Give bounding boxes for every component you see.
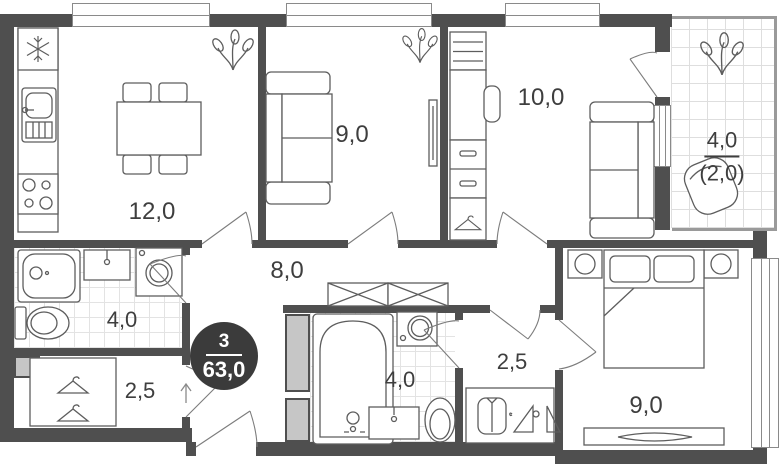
door-opening-storage bbox=[182, 365, 190, 417]
window-room-top bbox=[505, 3, 600, 27]
duct-shaft bbox=[285, 398, 310, 442]
door-opening-room-top bbox=[497, 240, 547, 248]
bed-icon bbox=[604, 250, 704, 368]
window-living bbox=[286, 3, 432, 27]
window-bedroom bbox=[751, 258, 779, 448]
kitchen-sink-icon bbox=[22, 88, 56, 142]
bathroom-center-floor bbox=[310, 313, 455, 442]
door-swing-icon bbox=[490, 310, 540, 339]
room-label-kitchen-dining: 12,0 bbox=[129, 200, 176, 224]
room-label-hallway: 8,0 bbox=[270, 259, 303, 283]
door-opening-balcony bbox=[655, 52, 670, 97]
door-swing-icon bbox=[559, 320, 596, 369]
storage-closet-icon bbox=[30, 358, 116, 426]
room-label-bedroom: 9,0 bbox=[629, 394, 662, 418]
room-label-living: 9,0 bbox=[335, 123, 368, 147]
window-kitchen bbox=[72, 3, 210, 27]
door-opening-bathroom-center bbox=[455, 320, 463, 368]
rooms-count: 3 bbox=[219, 332, 230, 351]
drawers-icon bbox=[450, 140, 486, 198]
total-badge: 3 63,0 bbox=[190, 322, 258, 390]
chair-icon bbox=[123, 155, 151, 174]
sofa-icon bbox=[266, 72, 332, 204]
door-opening-corridor bbox=[490, 305, 540, 313]
wall-left bbox=[0, 14, 14, 442]
shirt-icon bbox=[478, 398, 506, 434]
balcony-floor bbox=[671, 19, 774, 228]
balcony-area: 4,0 bbox=[705, 128, 740, 158]
wall-living-divider bbox=[440, 27, 448, 240]
wall-bottom-center bbox=[256, 442, 563, 456]
door-swing-icon bbox=[196, 411, 257, 447]
door-opening-bathroom-left bbox=[182, 255, 190, 303]
balcony-glazing-right bbox=[774, 16, 777, 231]
duct-shaft bbox=[285, 314, 310, 392]
room-label-bathroom-left: 4,0 bbox=[107, 309, 138, 331]
desk-icon bbox=[450, 70, 500, 140]
door-swing-icon bbox=[630, 52, 657, 97]
balcony-glazing-top bbox=[672, 16, 777, 19]
snowflake-icon bbox=[27, 36, 49, 62]
hangers-icon bbox=[510, 406, 560, 432]
door-opening-kitchen bbox=[202, 240, 252, 248]
wall-hall-top bbox=[14, 240, 563, 248]
total-area: 63,0 bbox=[203, 359, 246, 381]
room-label-room-top: 10,0 bbox=[518, 86, 565, 110]
tv-panel-icon bbox=[429, 100, 437, 166]
wall-bedroom-top bbox=[555, 240, 753, 248]
chair-icon bbox=[123, 83, 151, 102]
wall-bottom-left bbox=[0, 428, 192, 442]
duct-shaft bbox=[14, 356, 40, 378]
wardrobe-hanger-icon bbox=[450, 198, 486, 240]
wall-bathroom-left-bottom bbox=[14, 348, 190, 356]
dining-table-icon bbox=[117, 83, 201, 174]
wall-bottom-stub bbox=[186, 442, 196, 456]
plant-icon bbox=[401, 29, 439, 63]
chair-icon bbox=[159, 155, 187, 174]
tv-stand-icon bbox=[584, 428, 724, 445]
shelves-icon bbox=[450, 32, 486, 70]
nightstand-lamp-icon bbox=[568, 250, 602, 278]
corridor-closet-icon bbox=[466, 388, 560, 443]
door-opening-living bbox=[348, 240, 398, 248]
chair-icon bbox=[159, 83, 187, 102]
room-label-corridor: 2,5 bbox=[497, 351, 528, 373]
fridge-icon bbox=[18, 28, 58, 70]
balcony-glazing-bottom bbox=[672, 228, 777, 231]
tv-icon bbox=[618, 433, 692, 441]
badge-divider bbox=[206, 354, 242, 356]
room-label-storage: 2,5 bbox=[125, 380, 156, 402]
floor-plan: 12,0 9,0 10,0 4,0 (2,0) 8,0 4,0 2,5 4,0 … bbox=[0, 0, 779, 464]
nightstand-lamp-icon bbox=[704, 250, 738, 278]
window-balcony-wall bbox=[653, 105, 671, 167]
crossed-wardrobe-icon bbox=[328, 283, 448, 306]
wall-kitchen-divider bbox=[258, 27, 266, 240]
stove-icon bbox=[18, 174, 58, 214]
kitchen-counter-icon bbox=[18, 28, 58, 232]
chair-icon bbox=[484, 86, 500, 122]
room-label-bathroom-center: 4,0 bbox=[385, 369, 416, 391]
door-opening-bedroom bbox=[555, 320, 563, 370]
wall-bottom-right bbox=[555, 450, 767, 464]
plant-icon bbox=[211, 30, 256, 70]
bathroom-left-floor bbox=[14, 248, 182, 348]
sofa-icon bbox=[590, 102, 654, 238]
balcony-area-reduced: (2,0) bbox=[699, 161, 744, 187]
room-label-balcony: 4,0 (2,0) bbox=[699, 128, 744, 187]
